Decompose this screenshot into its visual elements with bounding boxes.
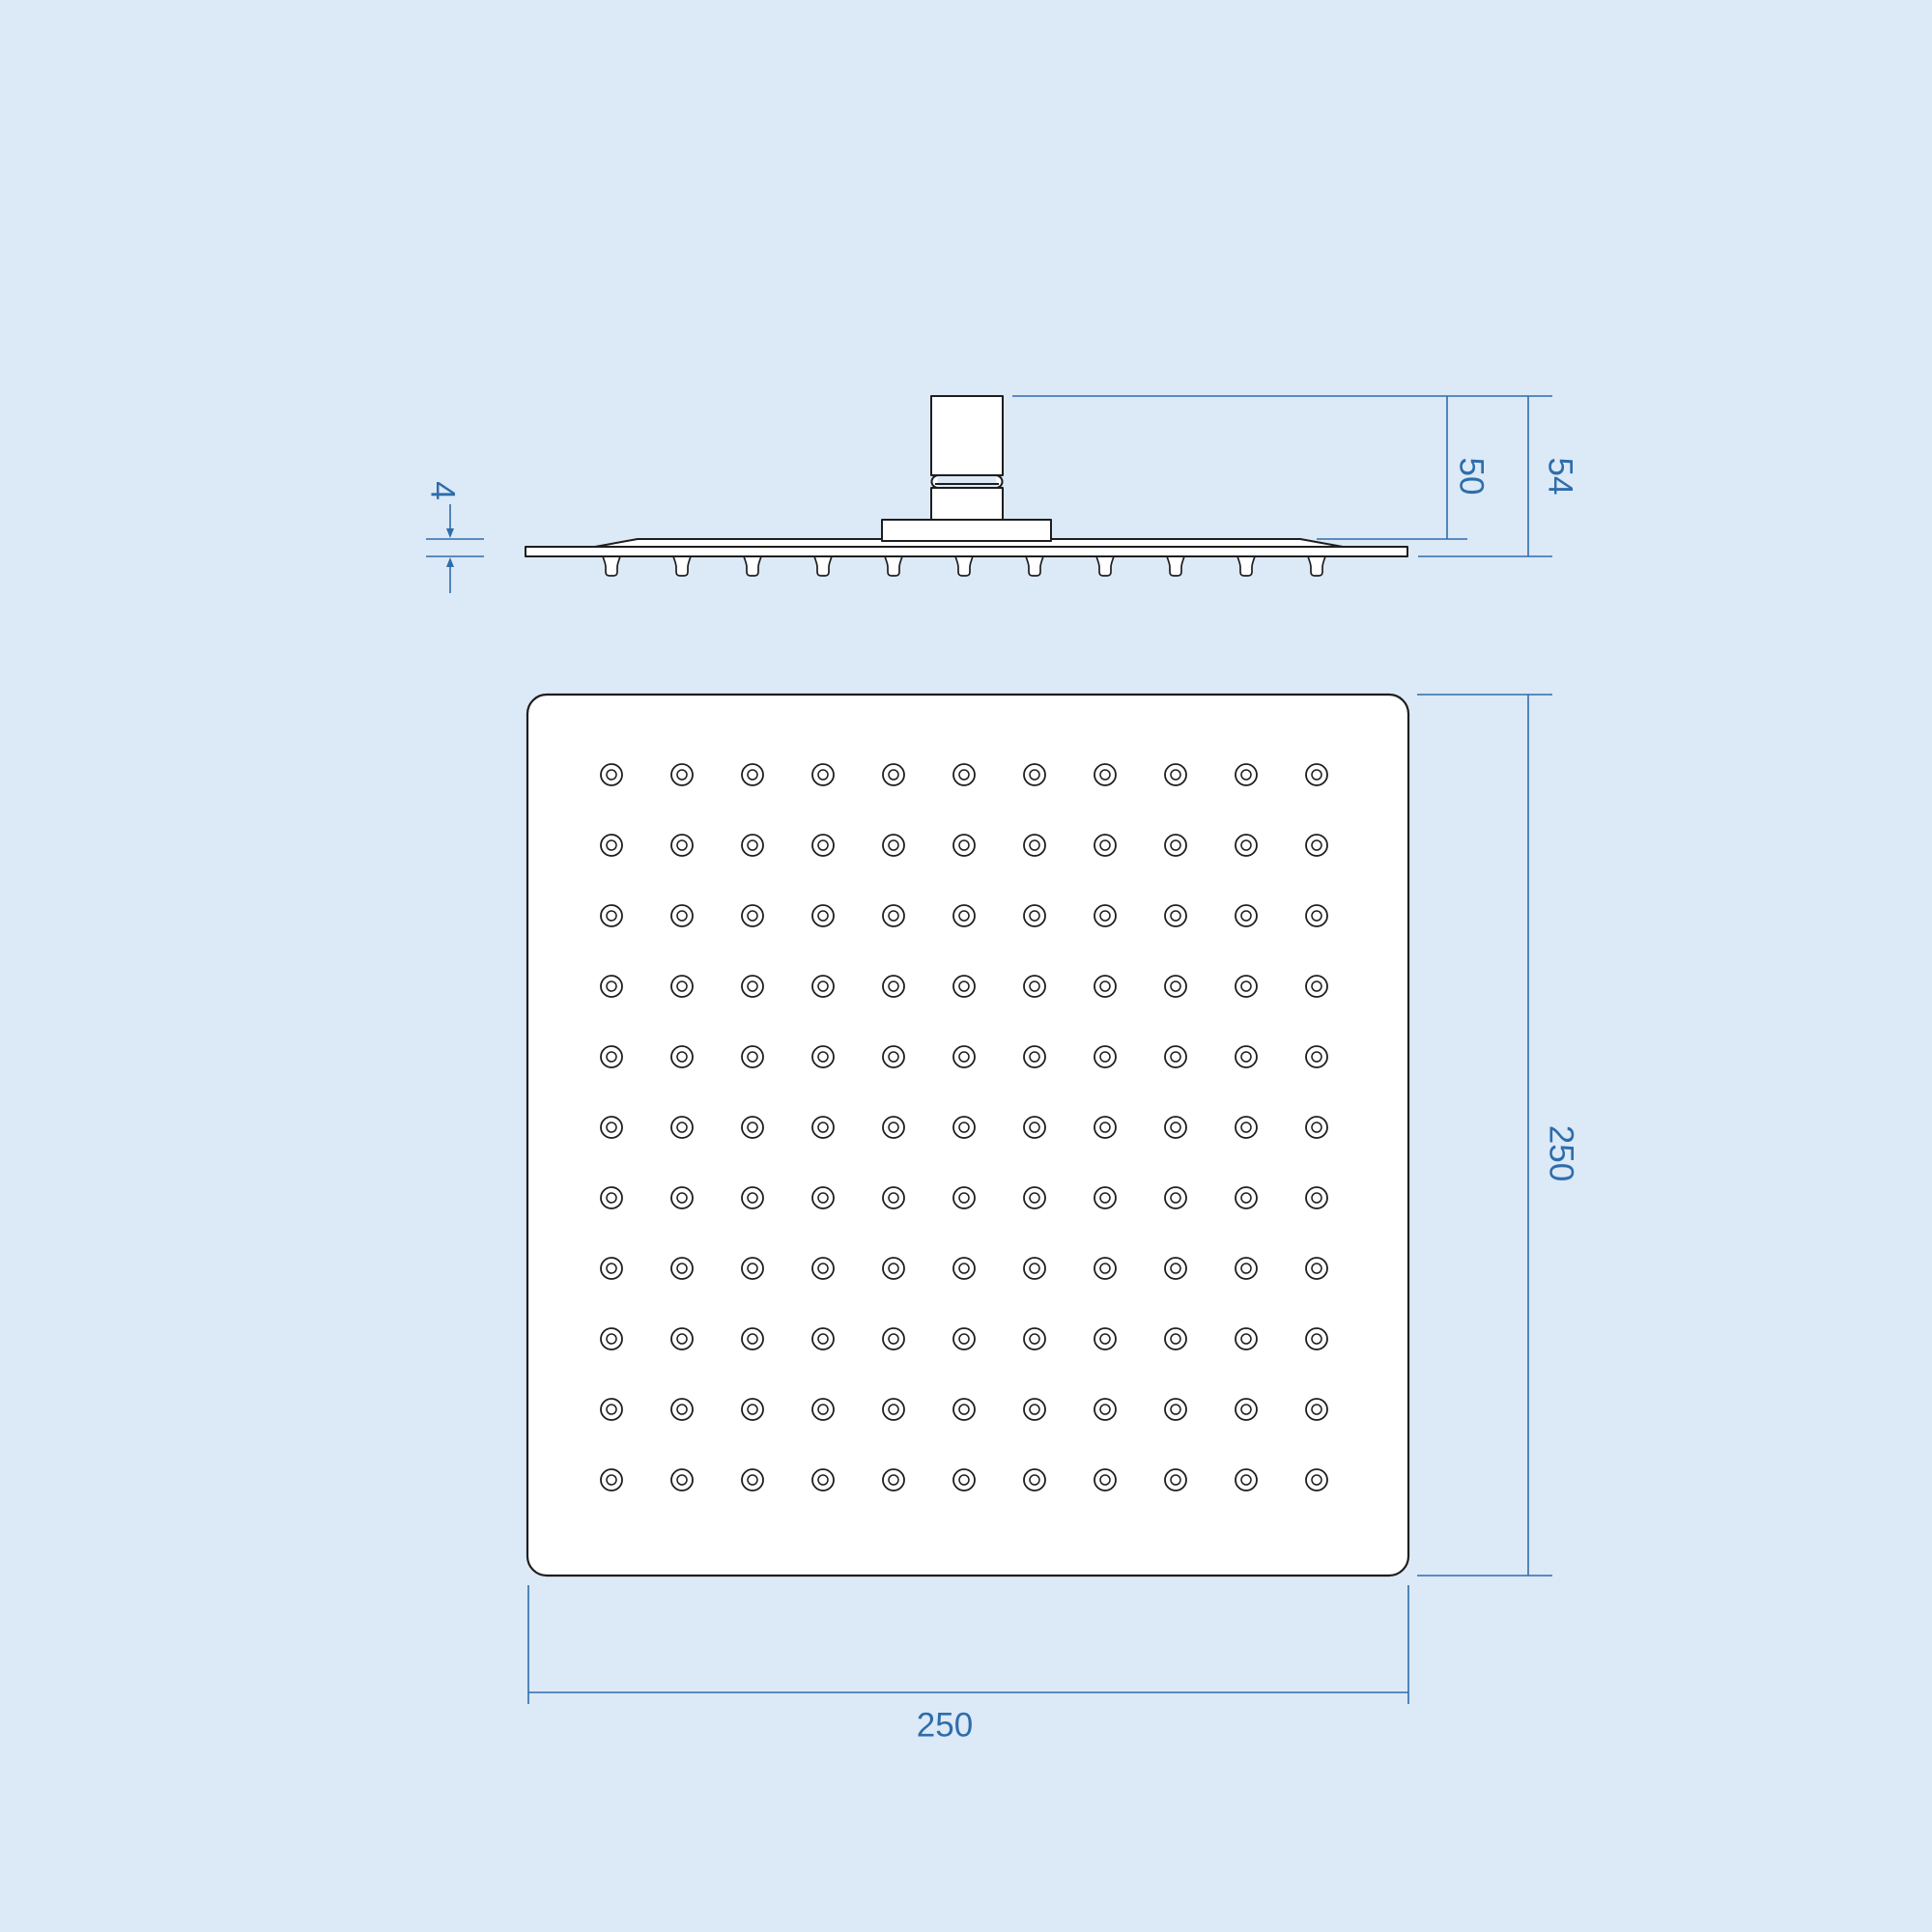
side-nozzle	[955, 556, 973, 576]
connector-top-block	[931, 396, 1003, 475]
connector-height-label: 50	[1453, 458, 1491, 496]
shower-plate-face	[527, 695, 1408, 1576]
thickness-lower-arrowhead	[446, 557, 454, 567]
thickness-upper-arrowhead	[446, 528, 454, 538]
side-nozzle	[744, 556, 761, 576]
plate-height-label: 250	[1543, 1125, 1580, 1181]
side-nozzle	[1026, 556, 1043, 576]
ball-joint-right-arc	[996, 475, 1003, 488]
ball-joint-left-arc	[931, 475, 938, 488]
side-nozzle	[673, 556, 691, 576]
side-nozzle	[1237, 556, 1255, 576]
thickness-label: 4	[424, 481, 462, 499]
technical-drawing: 4 50 54 250	[0, 0, 1932, 1932]
side-nozzle	[1096, 556, 1114, 576]
plate-slab	[526, 547, 1407, 556]
side-nozzle	[814, 556, 832, 576]
side-nozzle-row	[603, 556, 1325, 576]
connector-middle-block	[931, 488, 1003, 520]
dim-plate-height: 250	[1417, 695, 1580, 1576]
side-nozzle	[885, 556, 902, 576]
dim-connector-height: 50	[1317, 396, 1491, 539]
side-view: 4 50 54	[424, 396, 1579, 593]
side-nozzle	[603, 556, 620, 576]
dim-plate-width: 250	[528, 1585, 1408, 1745]
dim-total-height: 54	[1418, 396, 1579, 556]
dim-plate-thickness: 4	[424, 481, 485, 593]
plate-width-label: 250	[917, 1707, 973, 1745]
plan-view: 250 250	[527, 695, 1580, 1745]
side-nozzle	[1308, 556, 1325, 576]
mount-base-block	[882, 520, 1051, 541]
total-height-label: 54	[1542, 458, 1579, 496]
side-nozzle	[1167, 556, 1184, 576]
